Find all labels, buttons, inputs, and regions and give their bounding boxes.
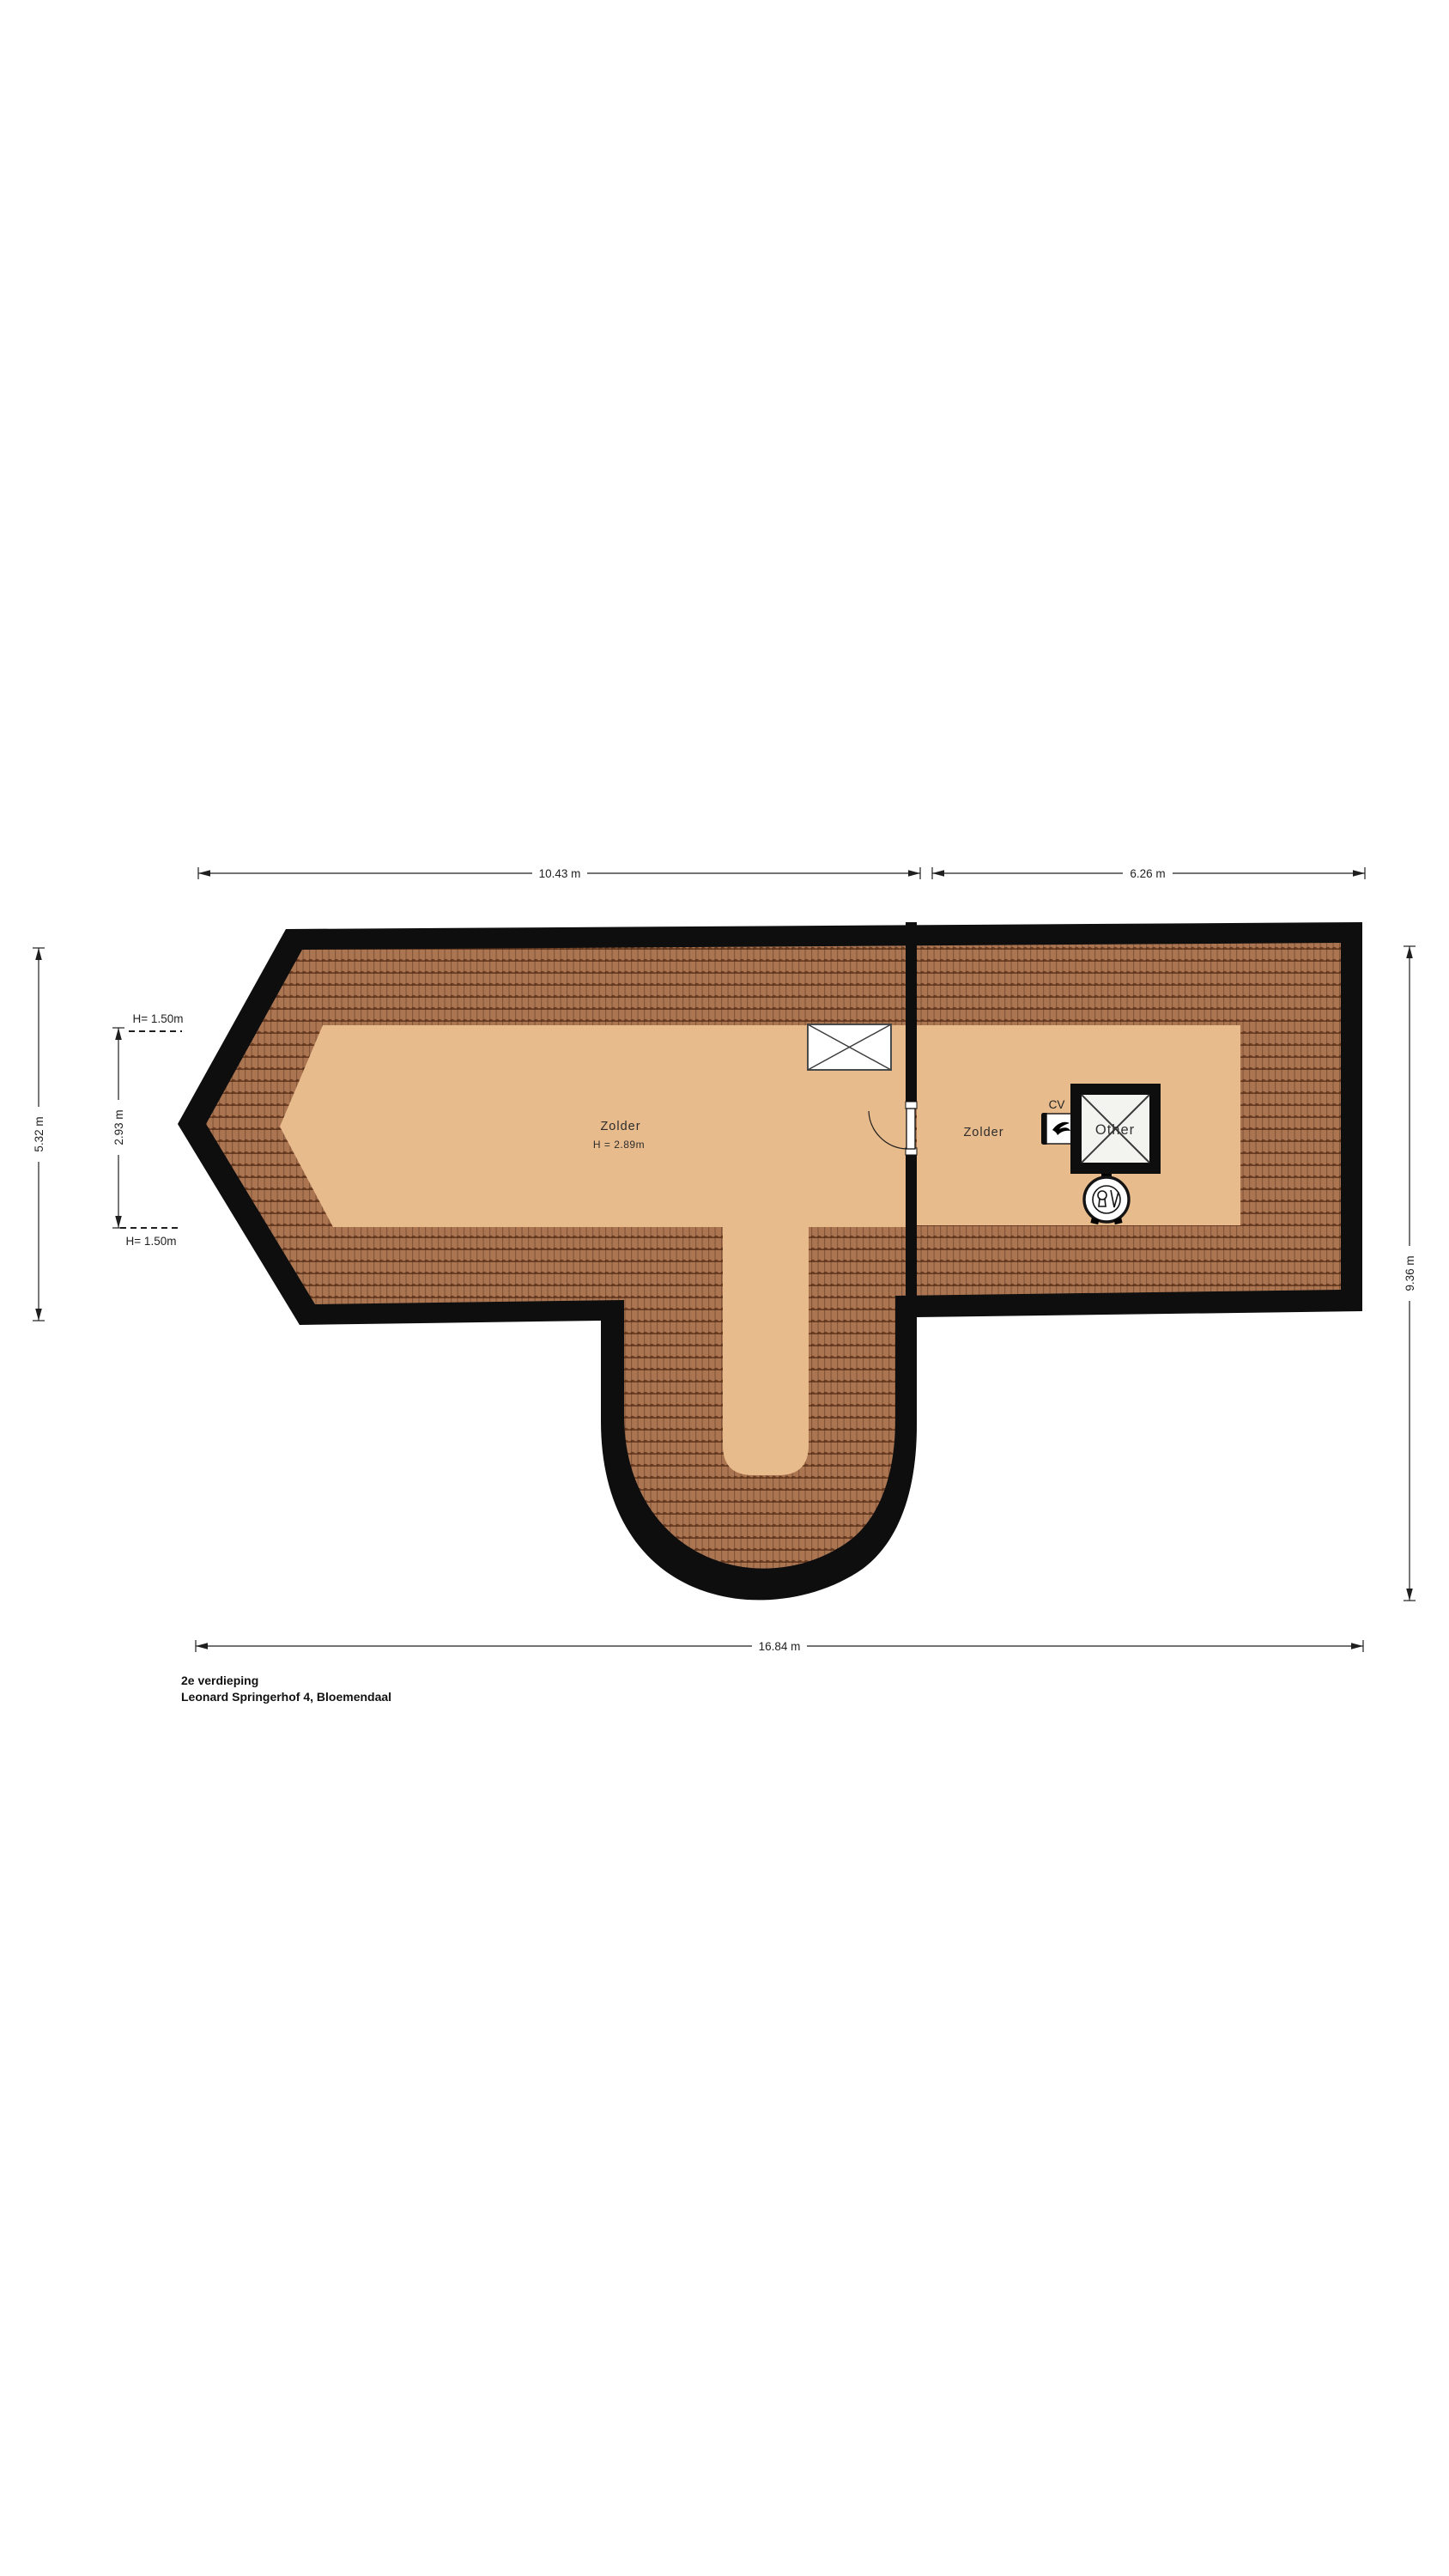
dim-right: 9.36 m xyxy=(1402,946,1417,1601)
door-jamb-top xyxy=(906,1102,917,1109)
door-leaf xyxy=(906,1109,915,1149)
dim-left-inner-label: 2.93 m xyxy=(112,1109,125,1145)
dim-bottom-label: 16.84 m xyxy=(759,1640,801,1653)
dim-left-inner: 2.93 m xyxy=(111,1028,126,1228)
divider-wall-lower xyxy=(906,1155,917,1309)
dim-bottom: 16.84 m xyxy=(196,1638,1363,1654)
height-marker-top-label: H= 1.50m xyxy=(133,1012,184,1025)
dim-left-outer-label: 5.32 m xyxy=(33,1116,45,1151)
skylight-window xyxy=(808,1024,891,1070)
room-height-zolder-left: H = 2.89m xyxy=(593,1139,645,1151)
room-label-zolder-right: Zolder xyxy=(963,1126,1003,1139)
footer-title-block: 2e verdieping Leonard Springerhof 4, Blo… xyxy=(181,1673,391,1705)
other-shaft-label: Other xyxy=(1095,1122,1135,1138)
other-shaft: Other xyxy=(1070,1084,1161,1174)
address-line: Leonard Springerhof 4, Bloemendaal xyxy=(181,1689,391,1705)
dim-top-left-label: 10.43 m xyxy=(539,867,581,880)
height-marker-top: H= 1.50m xyxy=(129,1012,183,1031)
dim-top-right-label: 6.26 m xyxy=(1130,867,1165,880)
divider-wall-upper xyxy=(906,922,917,1102)
dim-top-left: 10.43 m xyxy=(198,866,920,881)
dim-right-label: 9.36 m xyxy=(1404,1255,1416,1291)
floorplan-page: CV Other Zolder H = 2.89m Zolder 10.43 m xyxy=(0,0,1449,2576)
room-label-zolder-left: Zolder xyxy=(600,1120,640,1133)
dim-left-outer: 5.32 m xyxy=(31,948,46,1321)
cv-label: CV xyxy=(1049,1098,1065,1111)
dim-top-right: 6.26 m xyxy=(932,866,1365,881)
height-marker-bottom: H= 1.50m xyxy=(120,1228,181,1248)
height-marker-bottom-label: H= 1.50m xyxy=(126,1235,177,1248)
floor-title: 2e verdieping xyxy=(181,1673,391,1689)
floorplan-svg: CV Other Zolder H = 2.89m Zolder 10.43 m xyxy=(0,0,1449,2576)
